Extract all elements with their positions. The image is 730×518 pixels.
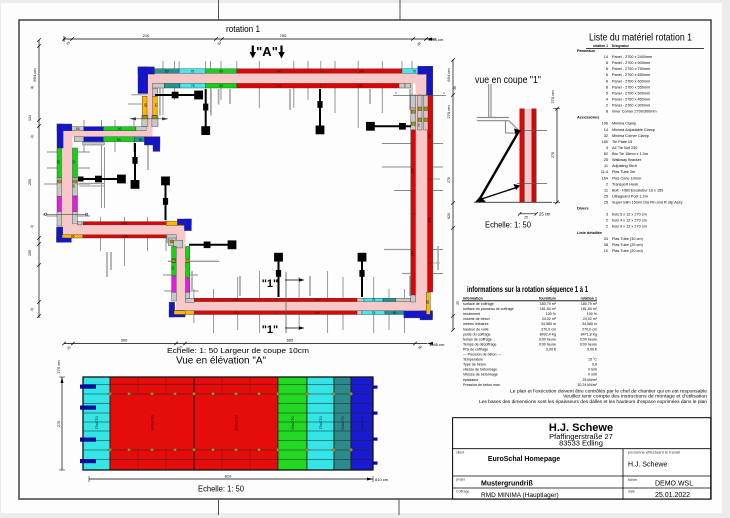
svg-text:90x270: 90x270 (290, 416, 295, 430)
svg-text:2: 2 (606, 225, 608, 229)
svg-text:34: 34 (604, 237, 608, 241)
svg-text:Minima Clamp: Minima Clamp (612, 122, 636, 126)
svg-text:hauteur de voile: hauteur de voile (463, 327, 489, 331)
svg-text:Plas Cone 10mm: Plas Cone 10mm (612, 176, 641, 180)
svg-text:Panel - 2700 x 900mm: Panel - 2700 x 900mm (612, 61, 650, 65)
svg-text:270: 270 (551, 152, 555, 158)
svg-text:0,6: 0,6 (592, 363, 597, 367)
svg-text:0 m/h: 0 m/h (588, 373, 597, 377)
svg-text:38: 38 (604, 243, 608, 247)
svg-text:50x270: 50x270 (340, 416, 345, 430)
svg-text:100 %: 100 % (587, 312, 598, 316)
svg-text:106: 106 (602, 122, 608, 126)
svg-text:Vue en élévation "A": Vue en élévation "A" (176, 355, 266, 367)
svg-text:4: 4 (606, 146, 608, 150)
svg-text:bois 5 x 12 x 270 cm: bois 5 x 12 x 270 cm (612, 213, 647, 217)
svg-text:240: 240 (427, 133, 431, 139)
svg-text:90: 90 (72, 160, 76, 164)
svg-text:Panel - 2700 x 550mm: Panel - 2700 x 550mm (612, 85, 650, 89)
svg-text:270,0 cm: 270,0 cm (541, 327, 556, 331)
svg-text:8: 8 (606, 61, 608, 65)
svg-text:"A": "A" (256, 44, 278, 59)
svg-text:Accessoires: Accessoires (577, 116, 599, 120)
svg-text:Veuillez tenir compte des inst: Veuillez tenir compte des instructions d… (563, 394, 708, 399)
svg-text:6: 6 (606, 73, 608, 77)
svg-text:8: 8 (606, 67, 608, 71)
svg-text:25: 25 (604, 201, 608, 205)
svg-text:8492,4 Kg: 8492,4 Kg (540, 332, 556, 336)
svg-text:50: 50 (393, 311, 397, 315)
svg-text:Ultraguard Post 1.2m: Ultraguard Post 1.2m (612, 194, 648, 198)
svg-text:3: 3 (606, 213, 608, 217)
svg-text:11: 11 (604, 164, 608, 168)
svg-text:Plas Tube (25 cm): Plas Tube (25 cm) (612, 243, 644, 247)
svg-text:Walkway Bracket: Walkway Bracket (612, 158, 642, 162)
svg-text:270 cm: 270 cm (550, 90, 555, 104)
svg-text:270 cm: 270 cm (446, 105, 451, 119)
svg-text:épaisseur: épaisseur (463, 378, 479, 382)
svg-text:240: 240 (121, 221, 127, 225)
svg-text:90: 90 (117, 138, 121, 142)
svg-text:30,24 kN/m²: 30,24 kN/m² (577, 383, 597, 387)
svg-text:0:00 heure: 0:00 heure (539, 342, 556, 346)
svg-text:Plas Tube 2m: Plas Tube 2m (612, 170, 635, 174)
svg-text:240x270: 240x270 (234, 415, 239, 431)
svg-text:694 cm: 694 cm (32, 68, 37, 82)
svg-text:810: 810 (225, 474, 232, 479)
svg-text:50: 50 (139, 138, 143, 142)
svg-text:projet: projet (456, 478, 465, 482)
svg-text:Mustergrundriß: Mustergrundriß (481, 480, 533, 487)
svg-text:11: 11 (604, 188, 608, 192)
svg-text:mètres linéaires: mètres linéaires (463, 322, 489, 326)
svg-text:14: 14 (604, 55, 608, 59)
svg-text:270 cm: 270 cm (56, 360, 61, 374)
svg-text:Panel - 2700 x 750mm: Panel - 2700 x 750mm (612, 67, 650, 71)
svg-text:0,00 €: 0,00 € (546, 347, 556, 351)
svg-text:Type de béton: Type de béton (463, 363, 486, 367)
svg-text:vitesse de bétonnage: vitesse de bétonnage (463, 368, 497, 372)
svg-text:195: 195 (28, 250, 32, 256)
svg-text:8471,8 Kg: 8471,8 Kg (581, 332, 597, 336)
svg-text:bois 9 x 12 x 270 cm: bois 9 x 12 x 270 cm (612, 225, 647, 229)
svg-text:"1": "1" (262, 324, 279, 336)
svg-text:Minima Corner Clamp: Minima Corner Clamp (612, 134, 649, 138)
svg-text:AZ Tie Nut 230: AZ Tie Nut 230 (612, 146, 637, 150)
svg-text:H.J. Schewe: H.J. Schewe (628, 462, 667, 469)
svg-text:181,84 m²: 181,84 m² (581, 307, 598, 311)
svg-text:90: 90 (219, 84, 223, 88)
svg-text:75: 75 (372, 311, 376, 315)
svg-text:240: 240 (122, 235, 128, 239)
svg-text:Prix du coffrage: Prix du coffrage (463, 347, 488, 351)
svg-text:36: 36 (453, 86, 457, 90)
svg-text:Adjusting Strut: Adjusting Strut (612, 164, 638, 168)
svg-text:date: date (628, 490, 635, 494)
svg-text:Panel - 2700 x 600mm: Panel - 2700 x 600mm (612, 79, 650, 83)
svg-text:RMD MINIMA (Hauptlager): RMD MINIMA (Hauptlager) (481, 492, 559, 499)
svg-text:100 %: 100 % (546, 312, 557, 316)
svg-text:65: 65 (426, 300, 430, 304)
svg-text:134: 134 (28, 115, 32, 121)
svg-text:60x270: 60x270 (360, 416, 365, 430)
svg-text:Liste du matériel rotation 1: Liste du matériel rotation 1 (589, 33, 692, 44)
svg-text:vue en coupe "1": vue en coupe "1" (475, 74, 541, 86)
svg-text:8: 8 (606, 79, 608, 83)
svg-text:75x270: 75x270 (94, 416, 99, 430)
svg-text:270: 270 (447, 177, 451, 183)
svg-text:surface du panneau de coffrage: surface du panneau de coffrage (463, 307, 514, 311)
svg-text:1045 cm: 1045 cm (428, 37, 444, 42)
svg-text:65: 65 (155, 103, 159, 107)
svg-text:Bar Tie 15mm x 1.0m: Bar Tie 15mm x 1.0m (612, 152, 648, 156)
svg-text:rotation 1: rotation 1 (226, 24, 260, 35)
svg-text:24,02 m³: 24,02 m³ (542, 317, 557, 321)
svg-text:Pression de béton max.: Pression de béton max. (463, 383, 501, 387)
svg-text:10: 10 (604, 249, 608, 253)
svg-text:poids du coffrage: poids du coffrage (463, 332, 491, 336)
svg-text:0,00 €: 0,00 € (587, 347, 597, 351)
svg-text:Divers: Divers (577, 207, 589, 211)
svg-text:25: 25 (524, 216, 528, 220)
svg-text:240: 240 (314, 298, 320, 302)
svg-text:620: 620 (447, 213, 451, 219)
svg-text:Tie Plate 15: Tie Plate 15 (612, 140, 632, 144)
svg-text:90: 90 (56, 160, 60, 164)
svg-text:fourniture: fourniture (539, 297, 556, 301)
svg-text:Température: Température (463, 358, 483, 362)
svg-text:--- Pression de béton ---: --- Pression de béton --- (463, 353, 502, 357)
svg-text:240: 240 (276, 70, 282, 74)
svg-text:240: 240 (276, 84, 282, 88)
svg-text:810 cm: 810 cm (375, 477, 389, 482)
svg-text:14: 14 (604, 128, 608, 132)
svg-text:75x270: 75x270 (318, 416, 323, 430)
svg-text:Inner Corner 2700/300mm: Inner Corner 2700/300mm (612, 110, 657, 114)
svg-text:240: 240 (410, 168, 414, 174)
svg-text:55: 55 (72, 184, 76, 188)
svg-text:Panel - 2700 x 450mm: Panel - 2700 x 450mm (612, 97, 650, 101)
svg-text:665: 665 (287, 338, 294, 343)
svg-text:34,580 m: 34,580 m (582, 322, 597, 326)
svg-text:75: 75 (191, 84, 195, 88)
svg-text:65: 65 (71, 235, 75, 239)
svg-text:rotation 1: rotation 1 (593, 44, 608, 48)
svg-text:4: 4 (606, 97, 608, 101)
svg-text:Panneaux: Panneaux (577, 49, 596, 53)
svg-text:270: 270 (57, 421, 61, 427)
svg-text:90: 90 (219, 70, 223, 74)
svg-text:24,02 m³: 24,02 m³ (583, 317, 598, 321)
svg-text:75: 75 (191, 70, 195, 74)
svg-text:75: 75 (372, 298, 376, 302)
svg-text:2: 2 (606, 219, 608, 223)
svg-text:240: 240 (410, 251, 414, 257)
svg-text:25 kN/m²: 25 kN/m² (582, 378, 597, 382)
svg-text:EuroSchal Homepage: EuroSchal Homepage (488, 456, 560, 463)
svg-text:information: information (463, 297, 483, 301)
svg-text:34,580 m: 34,580 m (541, 322, 556, 326)
svg-text:0 le/h: 0 le/h (588, 368, 597, 372)
svg-text:0:00 heure: 0:00 heure (539, 337, 556, 341)
svg-text:Plas Tube (20 cm): Plas Tube (20 cm) (612, 249, 644, 253)
svg-text:volume de béton: volume de béton (463, 317, 490, 321)
svg-text:25: 25 (456, 301, 460, 305)
svg-text:180,79 m²: 180,79 m² (540, 302, 557, 306)
svg-text:82: 82 (604, 152, 608, 156)
svg-text:8: 8 (606, 85, 608, 89)
svg-text:0:00 heure: 0:00 heure (580, 342, 597, 346)
svg-text:25: 25 (604, 194, 608, 198)
svg-text:2: 2 (606, 104, 608, 108)
svg-text:50: 50 (165, 70, 169, 74)
svg-text:Coffrage: Coffrage (456, 490, 469, 494)
svg-text:25.01.2022: 25.01.2022 (655, 492, 690, 499)
svg-text:255: 255 (28, 179, 32, 185)
svg-text:2: 2 (606, 182, 608, 186)
svg-text:Bolt - HSB Excalubur 16 x 150: Bolt - HSB Excalubur 16 x 150 (612, 188, 663, 192)
svg-text:240x270: 240x270 (150, 415, 155, 431)
svg-text:180,79 m²: 180,79 m² (581, 302, 598, 306)
svg-text:Transport Hook: Transport Hook (612, 182, 638, 186)
svg-text:11,4: 11,4 (601, 170, 608, 174)
svg-text:Panel - 2700 x 300mm: Panel - 2700 x 300mm (612, 104, 650, 108)
svg-text:"1": "1" (262, 278, 279, 290)
svg-text:DEMO.WSL: DEMO.WSL (655, 481, 693, 488)
svg-text:Désignation: Désignation (612, 44, 630, 48)
svg-text:rendement: rendement (463, 312, 480, 316)
svg-text:240: 240 (314, 311, 320, 315)
svg-text:Panel - 2700 x 2400mm: Panel - 2700 x 2400mm (612, 55, 652, 59)
svg-text:Echelle: 1: 50: Echelle: 1: 50 (485, 221, 532, 230)
svg-text:694 cm: 694 cm (446, 68, 451, 82)
svg-text:informations sur la rotation: informations sur la rotation séquence 1 … (467, 284, 588, 294)
svg-text:240: 240 (233, 298, 239, 302)
svg-text:164: 164 (602, 176, 608, 180)
svg-text:1045 cm: 1045 cm (429, 342, 445, 347)
svg-text:240: 240 (233, 311, 239, 315)
svg-text:300: 300 (121, 338, 128, 343)
svg-text:65: 65 (144, 103, 148, 107)
svg-text:0:00 heure: 0:00 heure (580, 337, 597, 341)
svg-text:client: client (456, 451, 464, 455)
svg-text:210: 210 (143, 33, 150, 38)
svg-text:Liste détaillée: Liste détaillée (577, 231, 602, 235)
svg-text:Super Slim 15mm Dia Pin and R: Super Slim 15mm Dia Pin and R clip Assy (612, 201, 683, 205)
svg-text:Les bases des dimensions sont: Les bases des dimensions sont les épaiss… (479, 399, 708, 404)
svg-text:8: 8 (606, 110, 608, 114)
svg-text:personne effectuant le travail: personne effectuant le travail (628, 451, 680, 455)
svg-text:25: 25 (604, 158, 608, 162)
svg-text:5: 5 (606, 91, 608, 95)
svg-text:Echelle: 1: 50: Echelle: 1: 50 (198, 485, 245, 494)
svg-text:Plas Tube (30 cm): Plas Tube (30 cm) (612, 237, 644, 241)
svg-text:Panel - 2700 x 650mm: Panel - 2700 x 650mm (612, 73, 650, 77)
svg-text:surface de coffrage: surface de coffrage (463, 302, 494, 306)
svg-text:Temps de décoffrage: Temps de décoffrage (463, 342, 497, 346)
svg-text:240: 240 (357, 84, 363, 88)
svg-text:Minima Adjustable Clamp: Minima Adjustable Clamp (612, 128, 655, 132)
svg-text:90: 90 (171, 266, 175, 270)
svg-text:32: 32 (604, 134, 608, 138)
svg-text:fichier: fichier (628, 478, 638, 482)
svg-text:760: 760 (280, 33, 287, 38)
svg-text:83533 Edling: 83533 Edling (559, 439, 603, 448)
svg-text:181,84 m²: 181,84 m² (540, 307, 557, 311)
svg-text:240: 240 (359, 70, 365, 74)
svg-text:55: 55 (417, 123, 421, 127)
svg-text:15 °C: 15 °C (588, 358, 597, 362)
svg-text:160: 160 (602, 140, 608, 144)
svg-text:270,0 cm: 270,0 cm (582, 327, 597, 331)
svg-text:55: 55 (76, 127, 80, 131)
svg-text:240: 240 (427, 217, 431, 223)
svg-text:Panel - 2700 x 500mm: Panel - 2700 x 500mm (612, 91, 650, 95)
svg-text:25 cm: 25 cm (539, 212, 551, 217)
svg-text:rotation 1: rotation 1 (581, 297, 597, 301)
svg-text:Vitesse de bétonnage: Vitesse de bétonnage (463, 373, 498, 377)
svg-text:temps de coffrage: temps de coffrage (463, 337, 492, 341)
svg-text:bois 4 x 12 x 270 cm: bois 4 x 12 x 270 cm (612, 219, 647, 223)
svg-text:75: 75 (412, 70, 416, 74)
svg-text:90: 90 (118, 127, 122, 131)
